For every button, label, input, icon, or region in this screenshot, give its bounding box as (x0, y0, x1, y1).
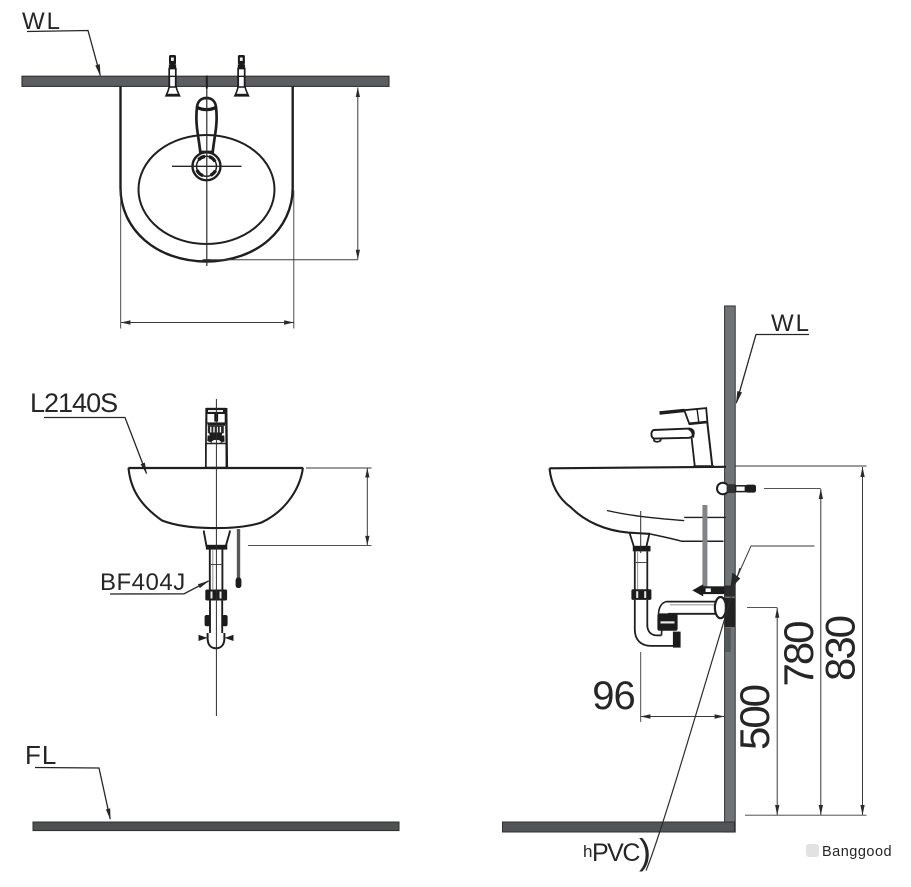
svg-text:830: 830 (817, 616, 864, 681)
svg-text:96: 96 (592, 674, 635, 718)
svg-text:Banggood: Banggood (822, 844, 892, 860)
svg-text:WL: WL (771, 310, 811, 337)
svg-text:500: 500 (731, 685, 778, 750)
svg-text:780: 780 (775, 622, 822, 687)
svg-text:PVC: PVC (592, 839, 640, 867)
svg-text:BF404J: BF404J (100, 569, 186, 596)
svg-text:FL: FL (25, 740, 57, 770)
svg-text:L2140S: L2140S (30, 388, 117, 418)
svg-text:): ) (639, 831, 651, 872)
